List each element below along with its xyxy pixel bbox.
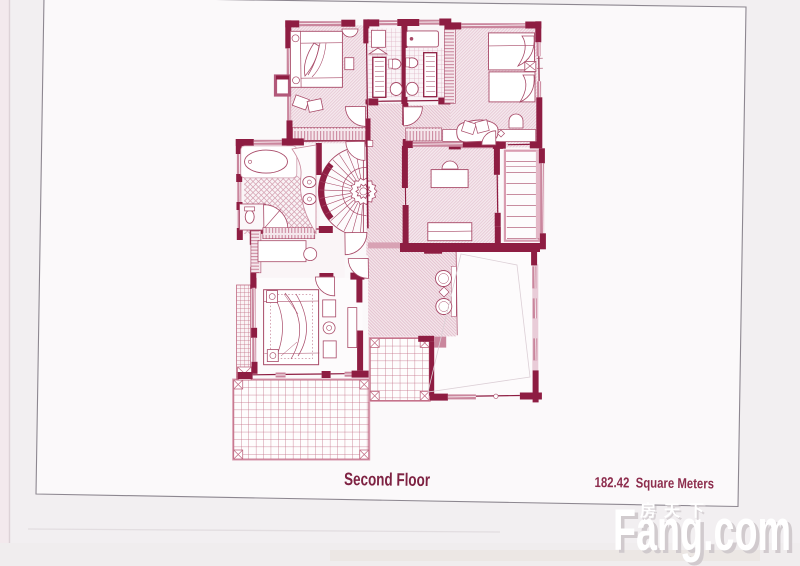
svg-text:Second Floor: Second Floor [344,469,430,490]
svg-text:房天下: 房天下 [640,501,712,520]
svg-text:182.42 Square Meters: 182.42 Square Meters [594,475,714,492]
